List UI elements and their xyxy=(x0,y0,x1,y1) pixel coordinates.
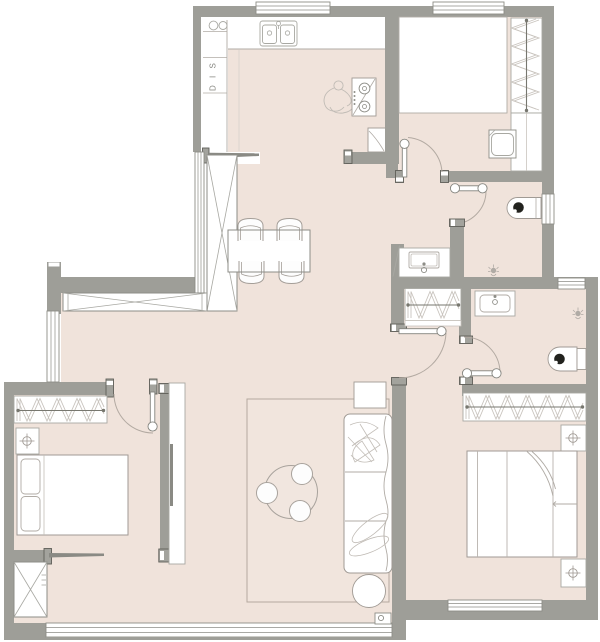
svg-text:D I S: D I S xyxy=(209,61,218,91)
